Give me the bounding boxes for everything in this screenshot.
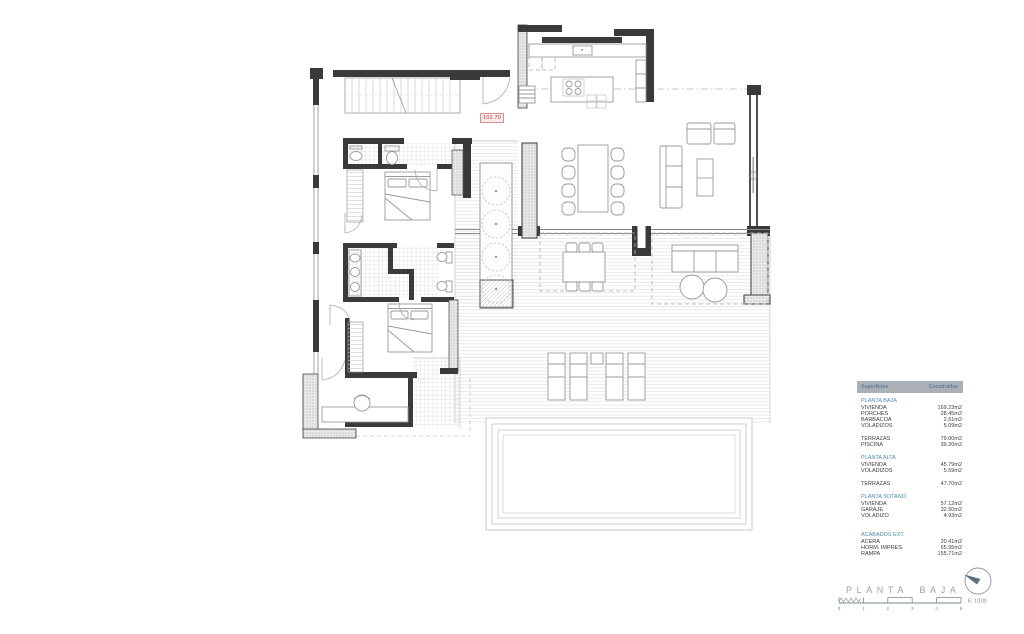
- study-desk: [322, 395, 408, 422]
- bed: [388, 304, 432, 352]
- legend-row: RAMPA155.71m2: [861, 551, 962, 557]
- legend-row-label: VOLADIZOS: [861, 423, 892, 429]
- kitchen: [519, 44, 646, 108]
- north-compass-icon: [964, 568, 991, 594]
- surfaces-header-col1: Superficies: [861, 384, 888, 390]
- scale-tick-label: 3: [911, 606, 914, 611]
- scale-tick-label: 1: [862, 606, 865, 611]
- scale-tick-label: 4: [935, 606, 938, 611]
- legend-section: PLANTA SOTANOVIVIENDA57.12m2GARAJE32.50m…: [861, 494, 962, 519]
- floor-plan-page: 102.70 Superficies Construidas PLANTA BA…: [0, 0, 1024, 634]
- pool: [486, 418, 752, 530]
- legend-row-label: VOLADIZO: [861, 513, 889, 519]
- kitchen-island: [551, 77, 613, 102]
- legend-row-value: 4.93m2: [944, 513, 962, 519]
- legend-row-label: TERRAZAS: [861, 481, 890, 487]
- surfaces-table-body: PLANTA BAJAVIVIENDA169.23m2PORCHES28.45m…: [857, 398, 963, 557]
- bed: [385, 172, 430, 220]
- sofa-set: [660, 123, 735, 208]
- legend-row: TERRAZAS47.70m2: [861, 481, 962, 487]
- legend-section: PLANTA BAJAVIVIENDA169.23m2PORCHES28.45m…: [861, 398, 962, 429]
- legend-section: TERRAZAS79.00m2PISCINA39.20m2: [861, 436, 962, 448]
- legend-row: VOLADIZOS5.59m2: [861, 468, 962, 474]
- legend-section-title: PLANTA ALTA: [861, 455, 962, 461]
- dining-table: [578, 145, 608, 212]
- legend-row-value: 155.71m2: [938, 551, 962, 557]
- scale-tick-label: 5: [960, 606, 963, 611]
- scale-tick-label: 0: [838, 606, 841, 611]
- garden-wall: [522, 143, 537, 238]
- surfaces-header-col2: Construidas: [929, 384, 958, 390]
- scale-ratio-label: E: 1/100: [968, 599, 987, 605]
- legend-row: PISCINA39.20m2: [861, 442, 962, 448]
- legend-section: TERRAZAS47.70m2: [861, 481, 962, 487]
- legend-row-value: 5.09m2: [944, 423, 962, 429]
- staircase: [345, 78, 460, 113]
- legend-row-label: PISCINA: [861, 442, 883, 448]
- legend-row: VOLADIZO4.93m2: [861, 513, 962, 519]
- legend-row: VOLADIZOS5.09m2: [861, 423, 962, 429]
- dining-set: [562, 145, 624, 215]
- surfaces-table-header: Superficies Construidas: [857, 381, 963, 393]
- closet: [348, 322, 363, 372]
- legend-row-value: 47.70m2: [941, 481, 962, 487]
- garden-steps: [519, 86, 535, 103]
- legend-section-title: PLANTA BAJA: [861, 398, 962, 404]
- scale-bar: 0 1 2 3 4 5 E: 1/100: [838, 598, 987, 612]
- surfaces-table: Superficies Construidas PLANTA BAJAVIVIE…: [857, 381, 963, 557]
- legend-row-label: VOLADIZOS: [861, 468, 892, 474]
- legend-section: ACABADOS EXT.ACERA20.41m2HORM. IMPRES.65…: [861, 532, 962, 557]
- barbecue: [480, 280, 513, 308]
- closet: [347, 170, 363, 222]
- legend-section-title: PLANTA SOTANO: [861, 494, 962, 500]
- level-label: 102.70: [480, 113, 504, 123]
- legend-section-title: ACABADOS EXT.: [861, 532, 962, 538]
- legend-row-label: RAMPA: [861, 551, 880, 557]
- legend-row-value: 39.20m2: [941, 442, 962, 448]
- scale-tick-label: 2: [887, 606, 890, 611]
- planter: [480, 163, 513, 308]
- plan-footer-graphics: 0 1 2 3 4 5 E: 1/100: [834, 566, 1010, 626]
- legend-row-value: 5.59m2: [944, 468, 962, 474]
- legend-section: PLANTA ALTAVIVIENDA45.79m2VOLADIZOS5.59m…: [861, 455, 962, 474]
